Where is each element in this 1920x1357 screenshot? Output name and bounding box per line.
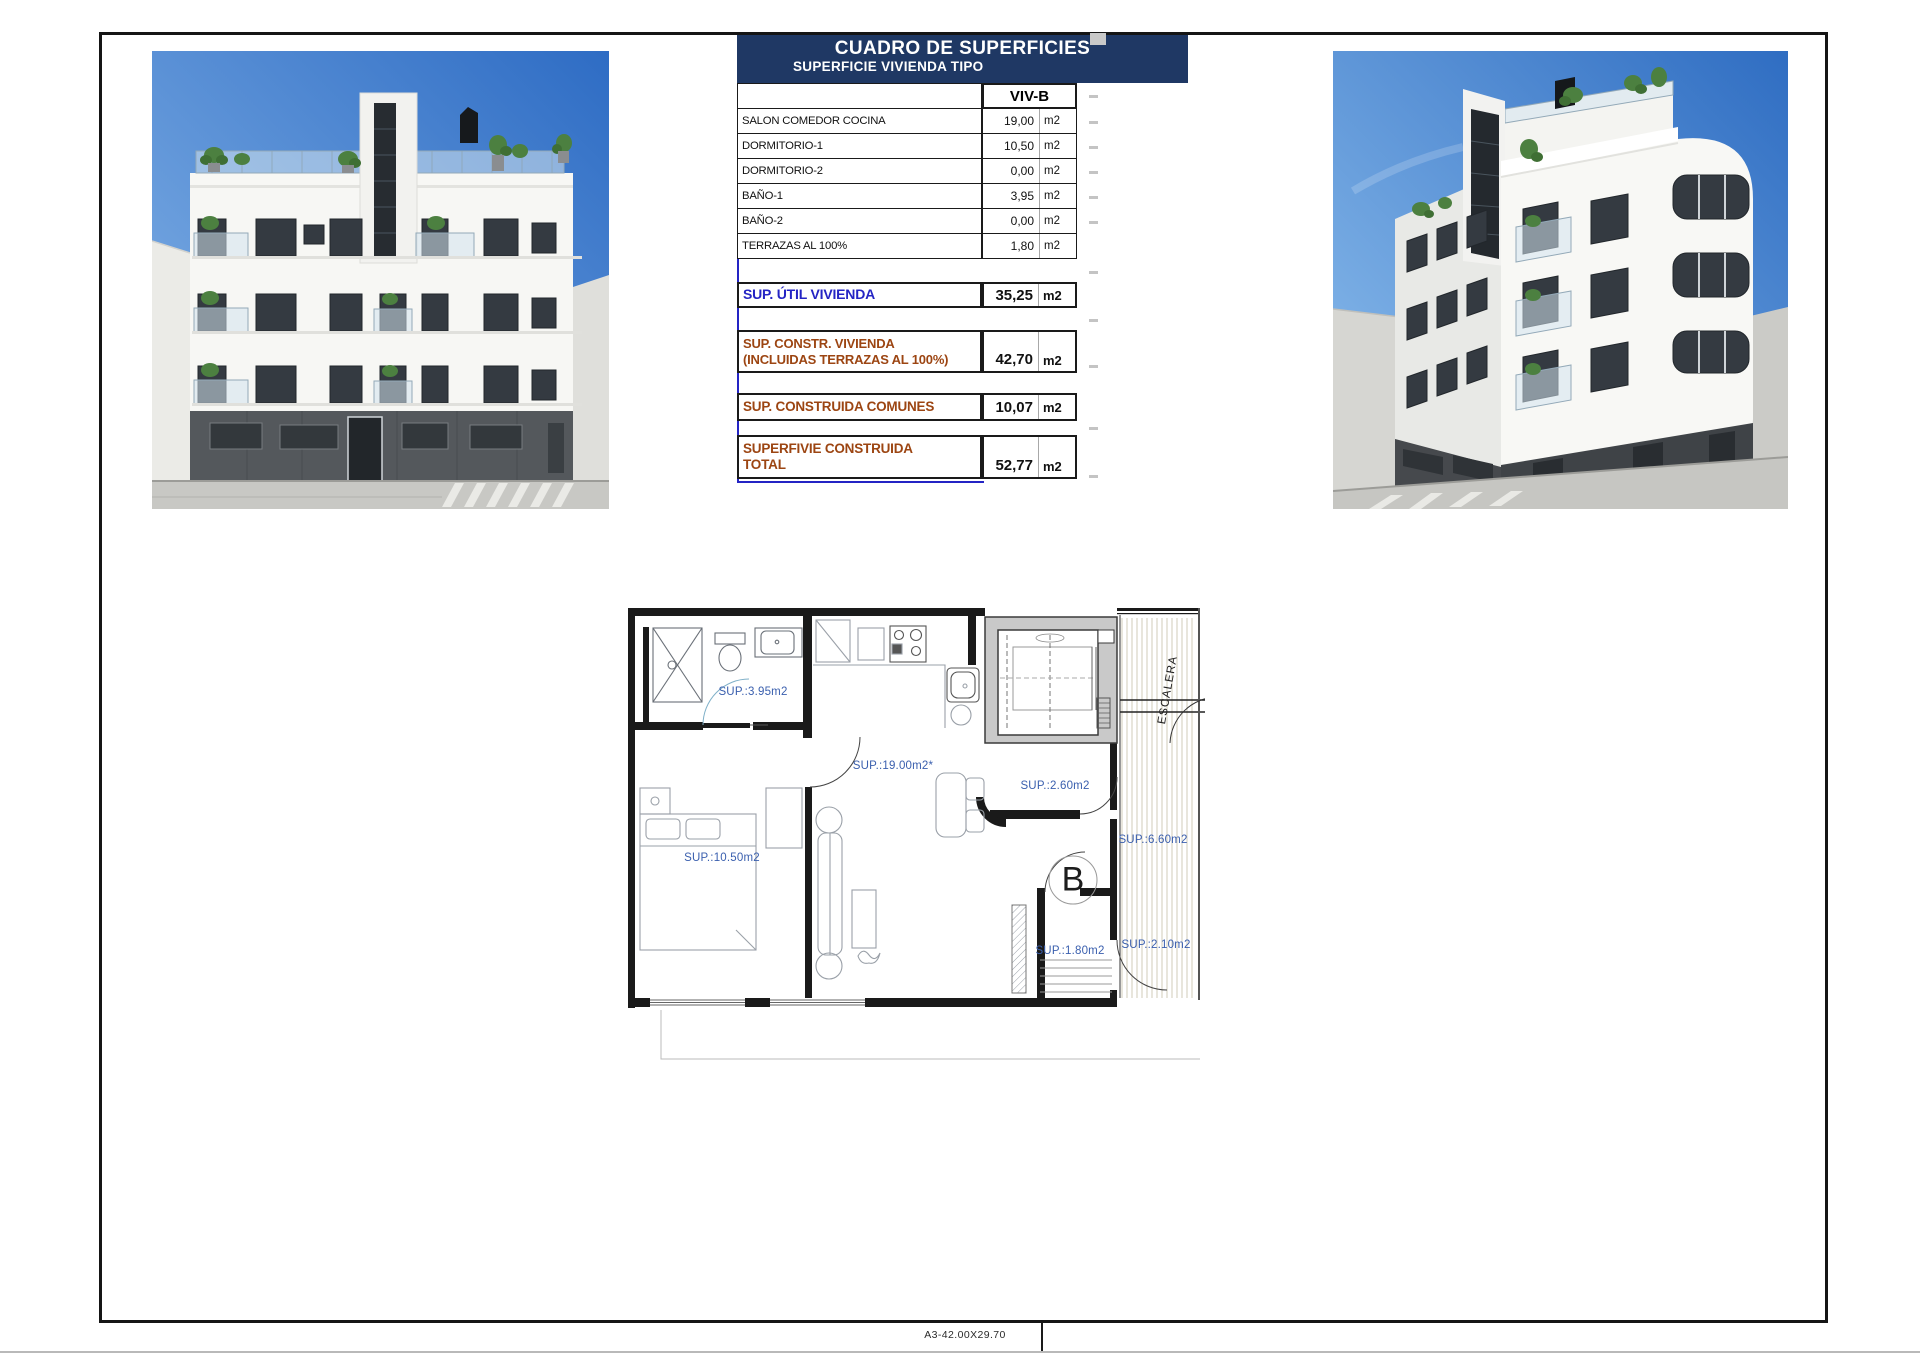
- room-label-bedroom: SUP.:10.50m2: [684, 852, 760, 864]
- unit-letter: B: [1062, 861, 1085, 900]
- summary-label-constr: SUP. CONSTR. VIVIENDA (INCLUIDAS TERRAZA…: [737, 330, 982, 373]
- ground-floor: [190, 411, 573, 481]
- room-label-living: SUP.:19.00m2*: [853, 760, 933, 772]
- bedroom-furniture: [640, 788, 802, 950]
- summary-value-comunes: 10,07m2: [982, 393, 1077, 421]
- summary-label-comunes: SUP. CONSTRUIDA COMUNES: [737, 393, 982, 421]
- scan-tick: [1089, 146, 1098, 149]
- row-label: DORMITORIO-2: [737, 158, 982, 184]
- scan-tick: [1089, 171, 1098, 174]
- plan-right-edge: [1198, 608, 1200, 1000]
- kitchen-fixtures: [813, 620, 979, 728]
- scan-artifact: [1090, 33, 1106, 45]
- sidewalk-line: [661, 1010, 1200, 1059]
- table-corner-cell: [737, 83, 982, 109]
- scan-tick: [1089, 121, 1098, 124]
- row-label: BAÑO-2: [737, 208, 982, 234]
- row-value: 3,95m2: [982, 183, 1077, 209]
- building-corner-illustration: [1333, 51, 1788, 509]
- street: [152, 481, 609, 509]
- floor-plan-drawing: [620, 598, 1205, 1070]
- surface-table: CUADRO DE SUPERFICIES SUPERFICIE VIVIEND…: [737, 35, 1188, 487]
- elevator: [985, 617, 1117, 743]
- room-label-hall: SUP.:2.60m2: [1020, 780, 1089, 792]
- scan-tick: [1089, 475, 1098, 478]
- scan-tick: [1089, 221, 1098, 224]
- scan-tick: [1089, 271, 1098, 274]
- building-render-corner: [1333, 51, 1788, 509]
- scan-tick: [1089, 365, 1098, 368]
- scan-tick: [1089, 196, 1098, 199]
- building-front-illustration: [152, 51, 609, 509]
- entrance-door: [348, 417, 382, 481]
- sheet-format-label: A3-42.00X29.70: [880, 1329, 1050, 1341]
- left-face-windows: [1407, 210, 1487, 408]
- floor-plan: SUP.:3.95m2 SUP.:19.00m2* SUP.:10.50m2 S…: [620, 598, 1205, 1070]
- building-render-front: [152, 51, 609, 509]
- row-label: DORMITORIO-1: [737, 133, 982, 159]
- surface-table-header: CUADRO DE SUPERFICIES SUPERFICIE VIVIEND…: [737, 35, 1188, 83]
- row-value: 1,80m2: [982, 233, 1077, 259]
- room-label-corridor: SUP.:6.60m2: [1118, 834, 1187, 846]
- surface-table-title: CUADRO DE SUPERFICIES: [737, 35, 1188, 60]
- table-bottom-rule: [737, 481, 984, 483]
- living-furniture: [816, 773, 984, 979]
- room-label-bathroom: SUP.:3.95m2: [718, 686, 787, 698]
- room-label-landing: SUP.:2.10m2: [1121, 939, 1190, 951]
- room-label-terrace: SUP.:1.80m2: [1035, 945, 1104, 957]
- plan-sheet: CUADRO DE SUPERFICIES SUPERFICIE VIVIEND…: [0, 0, 1920, 1357]
- row-label: BAÑO-1: [737, 183, 982, 209]
- summary-value-constr: 42,70m2: [982, 330, 1077, 373]
- surface-table-subtitle: SUPERFICIE VIVIENDA TIPO: [737, 59, 1188, 74]
- column-header-viv-b: VIV-B: [982, 83, 1077, 109]
- summary-value-util: 35,25m2: [982, 282, 1077, 308]
- page-bottom-edge: [0, 1351, 1920, 1353]
- scan-tick: [1089, 427, 1098, 430]
- summary-label-util: SUP. ÚTIL VIVIENDA: [737, 282, 982, 308]
- row-value: 10,50m2: [982, 133, 1077, 159]
- row-label: TERRAZAS AL 100%: [737, 233, 982, 259]
- summary-value-total: 52,77m2: [982, 435, 1077, 479]
- chimney: [460, 107, 478, 143]
- row-value: 0,00m2: [982, 158, 1077, 184]
- scan-tick: [1089, 95, 1098, 98]
- row-label: SALON COMEDOR COCINA: [737, 108, 982, 134]
- summary-label-total: SUPERFIVIE CONSTRUIDA TOTAL: [737, 435, 982, 479]
- row-value: 0,00m2: [982, 208, 1077, 234]
- row-value: 19,00m2: [982, 108, 1077, 134]
- scan-tick: [1089, 319, 1098, 322]
